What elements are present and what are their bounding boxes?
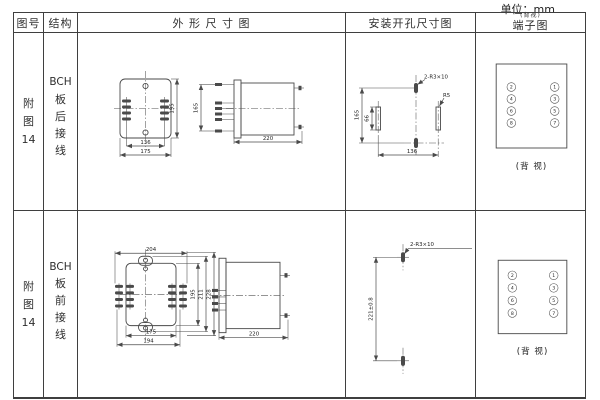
svg-text:1: 1 [553,85,556,91]
dim-v-span: 221±0.8 [369,257,397,361]
svg-text:5: 5 [552,298,555,304]
slot-bottom [414,138,418,148]
svg-text:8: 8 [511,311,514,317]
svg-text:8: 8 [510,121,513,127]
svg-text:220: 220 [249,332,260,338]
svg-text:228: 228 [207,289,213,300]
back-view-caption: (背 视) [516,161,548,172]
side-terminals [215,83,234,133]
header-fig-no: 图号 [14,13,44,33]
structure-char: BCH [49,77,71,88]
structure-row1: BCH 板 后 接 线 [44,33,78,211]
fig-char: 14 [22,134,36,145]
structure-char: 线 [55,145,66,156]
dim-slot-length: 66 [365,107,381,130]
svg-text:6: 6 [510,109,513,115]
svg-text:220: 220 [263,136,274,142]
slot-bottom [401,356,405,366]
front-view: 136 175 195 [114,71,179,157]
structure-char: 前 [55,295,66,306]
mounting-drawing-front-wiring: 2-R3×10 221±0.8 [346,211,475,397]
dim-side-span: 165 [194,85,216,132]
outline-drawing-front-wiring: 204 195 211 228 [78,211,345,397]
structure-char: BCH [49,262,71,273]
svg-text:195: 195 [170,103,176,113]
fig-no-row1: 附 图 14 [14,33,44,211]
terminal-diagram-front-wiring: 2 4 6 8 1 3 5 7 (背 视) [476,211,585,397]
mounting-drawing-rear-wiring: 2-R3×10 R5 [346,33,475,210]
dimension-table: 图号 结构 外 形 尺 寸 图 安装开孔尺寸图 (背视) 端子图 附 图 14 … [13,12,586,399]
svg-text:3: 3 [553,97,556,103]
dim-h-span: 136 [378,136,438,157]
svg-text:1: 1 [552,273,555,279]
svg-text:136: 136 [140,140,151,146]
back-view-caption: (背 视) [517,345,549,357]
structure-char: 线 [55,329,66,340]
structure-char: 板 [55,278,66,289]
svg-text:165: 165 [194,103,200,113]
dim-depth: 220 [234,131,302,144]
svg-text:195: 195 [191,289,197,299]
side-slot-left [376,101,381,136]
header-structure: 结构 [44,13,78,33]
outline-cell-row1: 136 175 195 [78,33,346,211]
svg-text:204: 204 [146,247,157,253]
mounting-studs [294,86,304,129]
svg-text:2: 2 [510,85,513,91]
front-view: 204 195 211 228 [115,247,216,347]
svg-text:211: 211 [199,289,205,299]
svg-text:4: 4 [510,97,513,103]
fig-no-row2: 附 图 14 [14,211,44,397]
structure-char: 接 [55,312,66,323]
dim-depth: 220 [219,320,288,340]
structure-char: 接 [55,128,66,139]
svg-text:5: 5 [553,109,556,115]
svg-text:2: 2 [511,273,514,279]
fig-char: 图 [23,299,34,310]
svg-text:194: 194 [143,339,154,345]
svg-text:221±0.8: 221±0.8 [369,297,375,321]
header-outline: 外 形 尺 寸 图 [78,13,346,33]
terminal-block [496,64,567,148]
header-terminal-note: (背视) [520,13,541,19]
svg-text:4: 4 [511,286,514,292]
structure-row2: BCH 板 前 接 线 [44,211,78,397]
scanned-manual-page: 单位：mm 图号 结构 外 形 尺 寸 图 安装开孔尺寸图 (背视) 端子图 附… [0,0,600,400]
svg-text:175: 175 [140,149,150,155]
fig-char: 附 [23,281,34,292]
header-terminal: (背视) 端子图 [476,13,585,33]
svg-text:175: 175 [146,330,156,336]
terminal-cell-row1: 2 4 6 8 1 3 5 7 (背 视) [476,33,585,211]
dim-v-span: 165 [355,88,415,143]
slot-top [414,83,418,93]
terminal-pins: 2 4 6 8 1 3 5 7 [508,271,558,317]
svg-text:165: 165 [355,110,361,120]
side-view: 220 [211,258,290,339]
svg-text:7: 7 [552,311,555,317]
fig-char: 附 [23,98,34,109]
slot-callout: 2-R3×10 [418,75,449,85]
slot-callout: 2-R3×10 [405,242,473,254]
svg-text:3: 3 [552,286,555,292]
mounting-cell-row2: 2-R3×10 221±0.8 [346,211,476,397]
mounting-cell-row1: 2-R3×10 R5 [346,33,476,211]
dim-inner-width: 136 [127,140,165,146]
fig-char: 14 [22,317,36,328]
outline-cell-row2: 204 195 211 228 [78,211,346,397]
terminal-diagram-rear-wiring: 2 4 6 8 1 3 5 7 (背 视) [476,33,585,210]
terminal-cell-row2: 2 4 6 8 1 3 5 7 (背 视) [476,211,585,397]
svg-text:136: 136 [407,149,418,155]
svg-text:2-R3×10: 2-R3×10 [410,242,434,248]
side-slot-right [436,101,441,154]
screw-columns-left [115,285,134,308]
terminal-pins: 2 4 6 8 1 3 5 7 [507,83,559,128]
side-view: 165 220 [194,80,305,144]
radius-callout: R5 [440,93,451,106]
screw-columns-right [168,285,187,308]
outline-drawing-rear-wiring: 136 175 195 [78,33,345,210]
mounting-studs [280,273,290,318]
structure-char: 后 [55,111,66,122]
svg-text:2-R3×10: 2-R3×10 [424,75,448,81]
header-mounting: 安装开孔尺寸图 [346,13,476,33]
fig-char: 图 [23,116,34,127]
svg-text:6: 6 [511,298,514,304]
svg-text:7: 7 [553,121,556,127]
svg-text:66: 66 [365,115,371,122]
structure-char: 板 [55,94,66,105]
slot-top [401,252,405,262]
